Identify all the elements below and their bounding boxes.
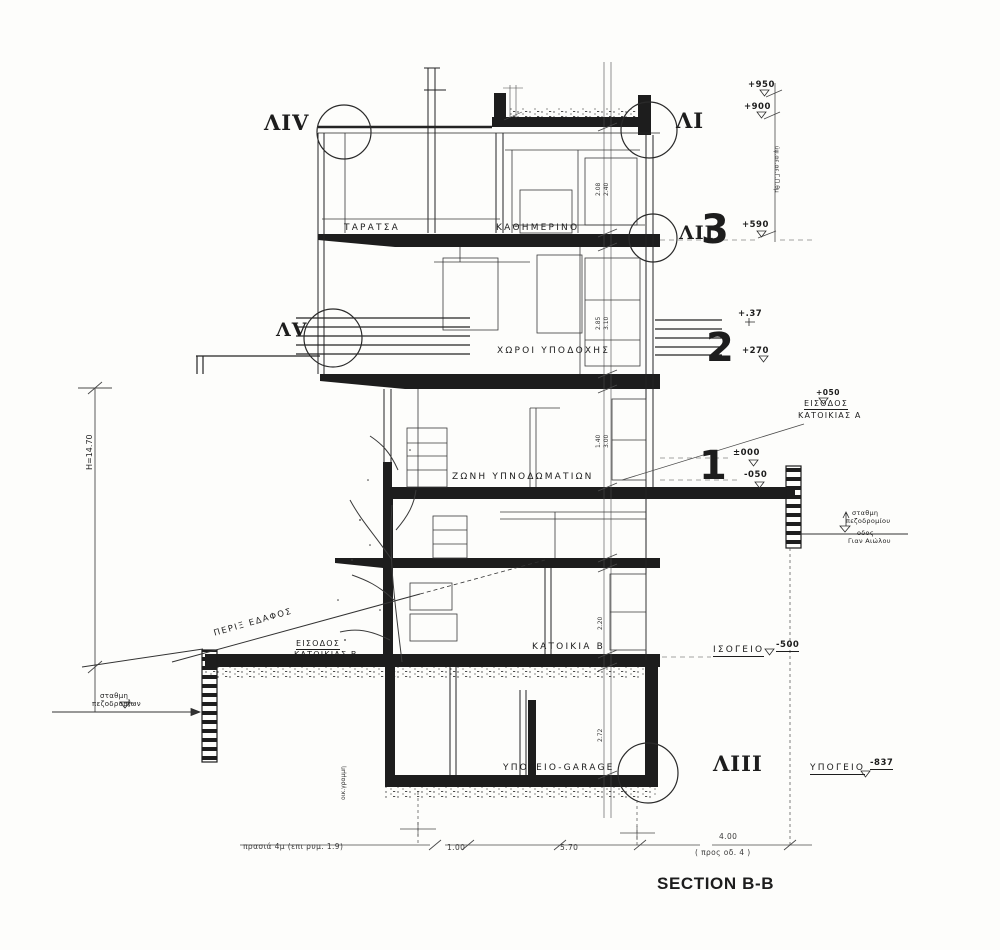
room-label-garage: ΥΠΟΓΕΙΟ-GARAGE xyxy=(503,764,615,773)
elevation-050: +050 xyxy=(816,389,840,397)
plant-sketch xyxy=(337,436,416,662)
street-right-line1: οδος xyxy=(857,530,874,537)
sidewalk-left-line1: σταθμη xyxy=(100,693,128,700)
storey-label-ground: ΙΣΟΓΕΙΟ xyxy=(713,646,764,657)
bottom-dim-3-note: ( προς οδ. 4 ) xyxy=(695,849,751,857)
elevation-minus-837: -837 xyxy=(870,759,893,770)
chain-dim: 2.85 xyxy=(596,317,602,330)
bottom-dim-note: πρασιά 4μ (επι ρυμ. 1.9) xyxy=(243,843,343,851)
drawing-title: SECTION B-B xyxy=(657,875,774,892)
dimension-lines xyxy=(78,62,812,818)
marker-lambda-iv: ΛIV xyxy=(264,112,309,133)
gravel-stipple xyxy=(205,108,657,798)
interior-lines xyxy=(322,133,646,650)
entrance-b-line1: ΕΙΣΟΔΟΣ xyxy=(296,640,340,650)
chain-dim: 2.40 xyxy=(604,183,610,196)
elevation-minus-050: -050 xyxy=(744,471,767,480)
chain-dim: 2.20 xyxy=(598,617,604,630)
elevation-590: +590 xyxy=(742,221,769,230)
floor-number-1: 1 xyxy=(699,446,727,486)
room-label-terrace: ΤΑΡΑΤΣΑ xyxy=(344,224,400,233)
elevation-000: ±000 xyxy=(733,449,760,458)
street-right-line2: Γιαν Αιώλου xyxy=(848,538,891,545)
entrance-b-line2: ΚΑΤΟΙΚΙΑΣ Β xyxy=(294,651,358,659)
architectural-section-sheet: ΛIV ΛI ΛII ΛV ΛIII 3 2 1 ΤΑΡΑΤΣΑ ΚΑΘΗΜΕΡ… xyxy=(0,0,1000,950)
room-label-living: ΚΑΘΗΜΕΡΙΝΟ xyxy=(496,224,579,233)
elevation-minus-500: -500 xyxy=(776,641,799,652)
right-dim-scribble: ύψ.αε.αε.Γ.Π.θμ xyxy=(773,146,779,193)
storey-label-basement: ΥΠΟΓΕΙΟ xyxy=(810,764,865,775)
building-line-note: οικ.γραμμη xyxy=(341,766,347,800)
sidewalk-left-line2: πεζοδρομίων xyxy=(92,701,141,708)
room-label-reception: ΧΩΡΟΙ ΥΠΟΔΟΧΗΣ xyxy=(497,347,610,356)
bottom-dim-1: 1.00 xyxy=(447,844,465,852)
sidewalk-right-line1: σταθμη xyxy=(852,510,878,517)
total-height-dim: H=14.70 xyxy=(86,434,94,470)
bottom-dim-3: 4.00 xyxy=(719,833,737,841)
sidewalk-right-line2: πεζοδρομίου xyxy=(846,518,890,525)
detail-marker-circles xyxy=(304,102,678,803)
bottom-dim-2: 5.70 xyxy=(560,844,578,852)
room-label-residence-b: ΚΑΤΟΙΚΙΑ Β xyxy=(532,643,605,652)
chain-dim: 3.10 xyxy=(604,317,610,330)
elevation-950: +950 xyxy=(748,81,775,90)
chain-dim: 2.08 xyxy=(596,183,602,196)
room-label-bedroom-zone: ΖΩΝΗ ΥΠΝΟΔΩΜΑΤΙΩΝ xyxy=(452,473,594,482)
marker-lambda-v: ΛV xyxy=(276,321,307,340)
floor-number-2: 2 xyxy=(706,328,734,368)
elevation-900: +900 xyxy=(744,103,771,112)
marker-lambda-iii: ΛIII xyxy=(713,753,763,774)
entrance-a-line2: ΚΑΤΟΙΚΙΑΣ Α xyxy=(798,412,862,420)
elevation-37: +.37 xyxy=(738,310,762,319)
concrete-slabs xyxy=(205,93,795,787)
chain-dim: 3.00 xyxy=(604,435,610,448)
entrance-a-line1: ΕΙΣΟΔΟΣ xyxy=(804,400,848,410)
chain-dim: 1.40 xyxy=(596,435,602,448)
floor-number-3: 3 xyxy=(701,210,729,250)
marker-lambda-i: ΛI xyxy=(676,110,704,131)
chain-dim: 2.72 xyxy=(598,729,604,742)
elevation-270: +270 xyxy=(742,347,769,356)
